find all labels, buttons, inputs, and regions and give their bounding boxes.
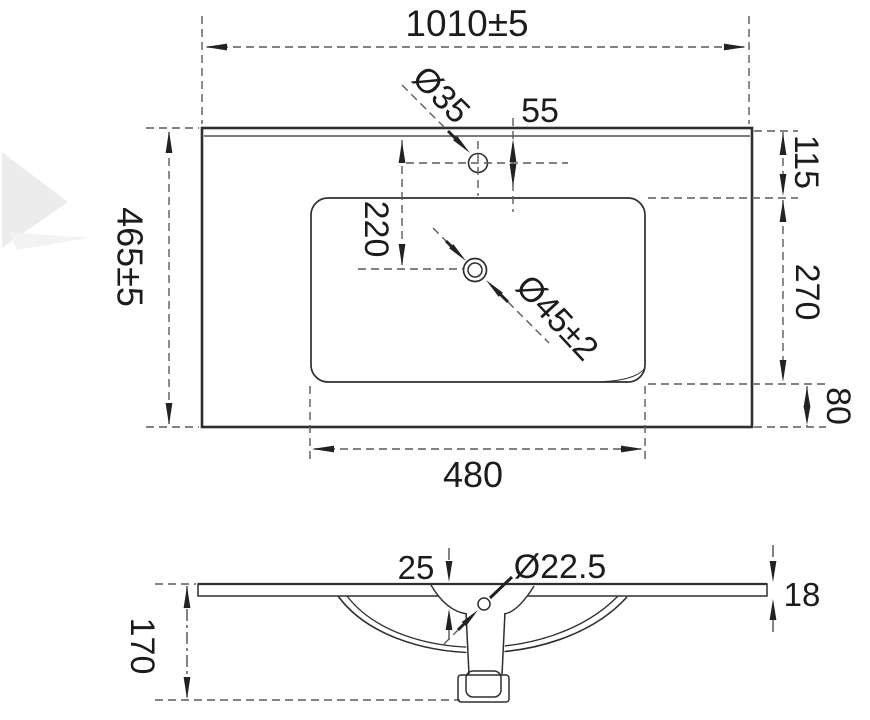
leader-faucet-diameter: Ø35 [402,59,477,153]
dim-slab-thickness: 18 [770,545,821,636]
dim-basin-depth-span: 270 [648,200,826,384]
drain-hole-outer [464,259,487,282]
dim-basin-to-front-edge: 80 [754,386,857,427]
dim-overall-height: 170 [123,584,196,699]
dim-label-overall-height: 170 [123,618,161,675]
dim-faucet-offset: 55 [510,92,559,212]
dim-label-faucet-diameter: Ø35 [405,59,477,131]
side-view: 170 25 Ø22.5 [123,545,820,702]
dim-label-recess-depth: 25 [398,549,435,586]
dim-label-overall-width: 1010±5 [405,3,528,44]
dim-label-overflow-diameter: Ø22.5 [514,548,607,586]
leader-drain-diameter: Ø45±2 [433,228,606,368]
dim-basin-width: 480 [310,386,645,495]
dim-label-overall-depth: 465±5 [110,207,151,307]
drain-hole-inner [468,263,482,277]
dim-overall-depth: 465±5 [110,128,200,427]
dim-label-basin-depth-span: 270 [788,264,826,321]
dim-rim-to-basin: 115 [648,131,825,198]
dim-label-slab-thickness: 18 [784,576,821,613]
dim-label-drain-diameter: Ø45±2 [508,268,605,368]
drawing-canvas: 1010±5 465±5 55 [0,0,870,720]
dim-label-drain-center-offset: 220 [357,201,395,258]
dim-drain-center-offset: 220 [357,140,405,266]
technical-drawing: 1010±5 465±5 55 [0,0,870,720]
dim-label-basin-to-front-edge: 80 [819,387,857,425]
top-view: 1010±5 465±5 55 [110,3,858,495]
dim-label-basin-width: 480 [443,454,503,495]
dim-label-rim-to-basin: 115 [787,135,825,189]
dim-label-faucet-offset: 55 [521,92,559,130]
